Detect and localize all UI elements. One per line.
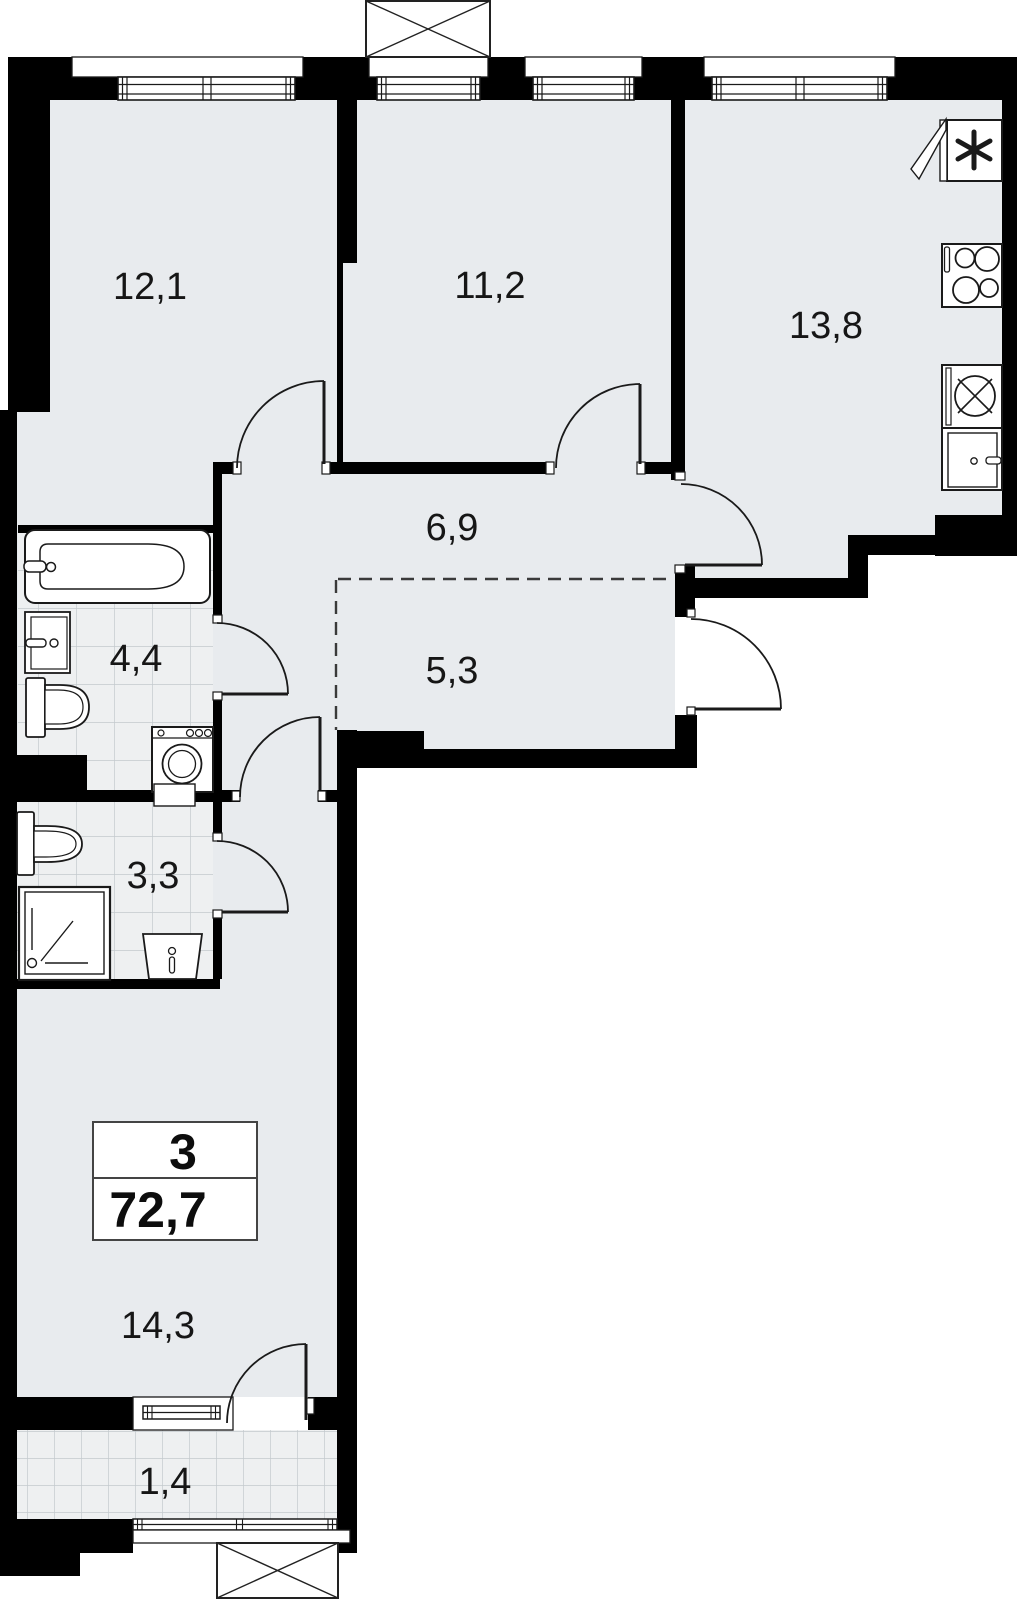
wall-kitchen-south-step (848, 535, 868, 598)
bathtub-icon (24, 530, 210, 603)
shower-icon (19, 887, 110, 980)
room-count-value: 3 (169, 1124, 197, 1180)
wall-shower-room-right-b (213, 910, 222, 979)
wall-left-upper (8, 57, 50, 412)
wardrobe-area-label: 5,3 (426, 650, 479, 692)
jamb (675, 565, 685, 573)
wall-hall-north-b (330, 462, 553, 474)
vent-shaft-icon (366, 1, 490, 57)
kitchen-sink-icon (942, 365, 1002, 428)
floor-plan: 3 72,7 12,1 11,2 13,8 6,9 5,3 4,4 3,3 14… (0, 0, 1024, 1600)
wall-wardrobe-bottom-a (338, 731, 424, 768)
wall-bedroom1-right (213, 472, 222, 533)
wall-divider-bedrooms-thick (337, 100, 357, 263)
wall-bathroom-right-b (213, 692, 222, 802)
bathroom-area-label: 4,4 (110, 638, 163, 680)
living-room-area-label: 14,3 (121, 1305, 195, 1347)
balcony-glazing (133, 1519, 350, 1543)
window-living-room (133, 1397, 233, 1430)
door-entrance (691, 619, 781, 709)
washbasin-icon-2 (143, 934, 202, 979)
jamb (318, 791, 326, 801)
window-bedroom2-right (525, 57, 642, 100)
vent-shaft-icon-2 (217, 1543, 338, 1598)
total-area-value: 72,7 (109, 1182, 206, 1238)
info-box: 3 72,7 (93, 1122, 257, 1240)
wall-kitchen-south-c (935, 515, 1017, 556)
jamb (213, 615, 222, 623)
shower-room-area-label: 3,3 (127, 855, 180, 897)
window-kitchen (704, 57, 895, 100)
wall-kitchen-south-b (868, 535, 935, 555)
wall-bathroom-right-a (213, 533, 222, 623)
kitchen-cabinet-icon (942, 428, 1002, 490)
jamb (213, 692, 222, 700)
floor-plan-svg: 3 72,7 12,1 11,2 13,8 6,9 5,3 4,4 3,3 14… (0, 0, 1024, 1600)
wall-balcony-bottom-a (0, 1519, 133, 1553)
hallway-area-label: 6,9 (426, 507, 479, 549)
door-arc-icon (691, 619, 781, 709)
bedroom1-area-label: 12,1 (113, 266, 187, 308)
kitchen-area-label: 13,8 (789, 305, 863, 347)
washbasin-icon (25, 612, 70, 673)
jamb (687, 707, 695, 715)
wall-hall-north-c (645, 462, 671, 474)
wall-left-lower (0, 410, 17, 1530)
jamb (687, 609, 695, 617)
bedroom2-area-label: 11,2 (454, 265, 525, 307)
wall-divider-bedrooms-thin (337, 263, 343, 464)
wall-kitchen-south-a (675, 578, 868, 598)
wall-wardrobe-bottom-b (424, 749, 697, 768)
jamb (546, 462, 554, 474)
jamb (213, 910, 222, 918)
jamb (213, 833, 222, 841)
wall-living-bottom-a (0, 1397, 133, 1430)
wall-living-bottom-b (308, 1397, 355, 1430)
jamb (675, 472, 685, 480)
wall-balcony-bottom-b (0, 1553, 80, 1576)
window-bedroom2-left (369, 57, 488, 100)
washing-machine-duct (154, 784, 195, 806)
wall-right-outer (1002, 57, 1017, 556)
jamb (232, 791, 240, 801)
wall-kitchen-left (671, 98, 685, 480)
stove-icon (942, 244, 1002, 307)
balcony-area-label: 1,4 (139, 1461, 192, 1503)
